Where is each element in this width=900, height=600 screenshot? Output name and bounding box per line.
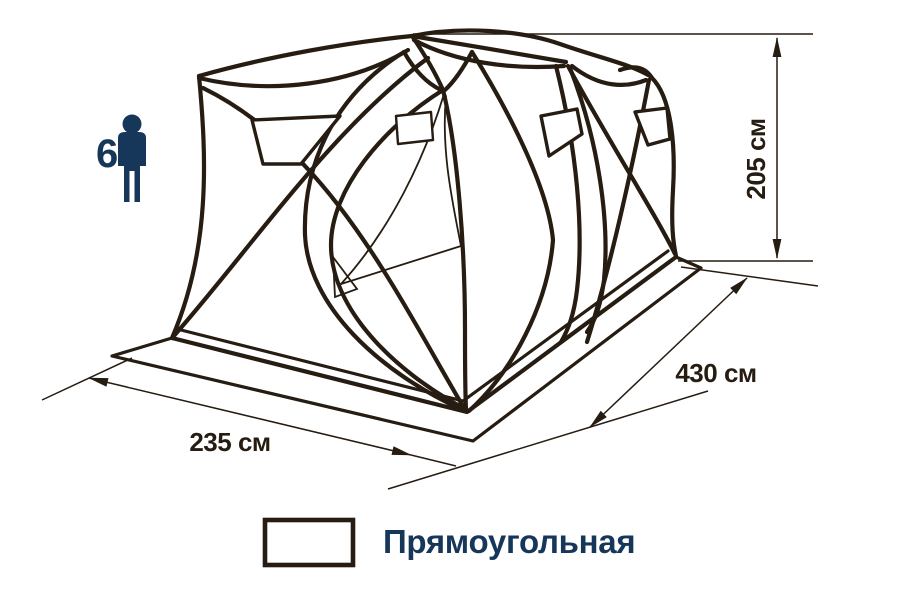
capacity-indicator: 6	[96, 115, 146, 203]
tent-left-brace-2	[172, 58, 428, 338]
shape-legend-label: Прямоугольная	[383, 523, 635, 560]
tent-line-art	[112, 30, 701, 441]
capacity-count: 6	[96, 132, 118, 176]
tent-skirt	[112, 257, 701, 441]
tent-saddle-sag	[414, 40, 564, 67]
length-dimension-label: 430 см	[675, 358, 756, 388]
length-dimension-arrow	[590, 278, 747, 427]
length-extension-line-top	[681, 267, 818, 286]
person-icon	[118, 115, 146, 203]
rectangle-icon	[265, 520, 353, 565]
right-module-window-far	[635, 108, 670, 145]
right-module-seam-1	[556, 66, 580, 342]
width-extension-line-left	[42, 358, 132, 400]
right-module-window-near	[541, 109, 582, 156]
right-module-brace-1	[568, 66, 675, 254]
tent-diagram-page: 205 см 430 см 235 см 6 Прямоугольная	[0, 0, 900, 600]
width-dimension-overrun	[411, 455, 456, 466]
door-flap-window	[396, 112, 433, 144]
tent-diagram-canvas: 205 см 430 см 235 см 6 Прямоугольная	[0, 0, 900, 600]
tent-left-edge	[172, 76, 204, 338]
left-wall-window	[252, 116, 340, 164]
shape-legend: Прямоугольная	[265, 520, 635, 565]
width-dimension-label: 235 см	[189, 427, 270, 457]
height-dimension-label: 205 см	[741, 118, 771, 199]
door-flap-tie-line	[341, 246, 461, 284]
front-door-leaf-right	[443, 90, 466, 409]
tent-base-inner-edge	[181, 251, 668, 401]
dimension-lines	[42, 34, 818, 489]
